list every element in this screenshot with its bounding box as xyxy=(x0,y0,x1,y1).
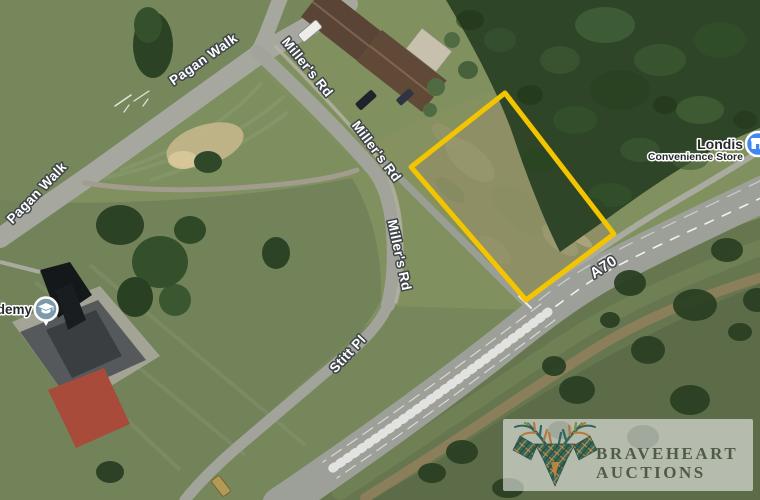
logo-line2: AUCTIONS xyxy=(596,463,706,482)
poi-londis-sublabel: Convenience Store xyxy=(648,151,743,163)
braveheart-auctions-logo: BRAVEHEART AUCTIONS xyxy=(503,419,753,491)
poi-academy-label: demy xyxy=(0,302,32,317)
logo-line1: BRAVEHEART xyxy=(596,444,738,463)
convenience-store-icon xyxy=(751,138,760,149)
map-canvas[interactable]: Pagan Walk Pagan Walk Miller's Rd Miller… xyxy=(0,0,760,500)
satellite-map[interactable]: Pagan Walk Pagan Walk Miller's Rd Miller… xyxy=(0,0,760,500)
poi-londis-label: Londis xyxy=(697,136,743,152)
